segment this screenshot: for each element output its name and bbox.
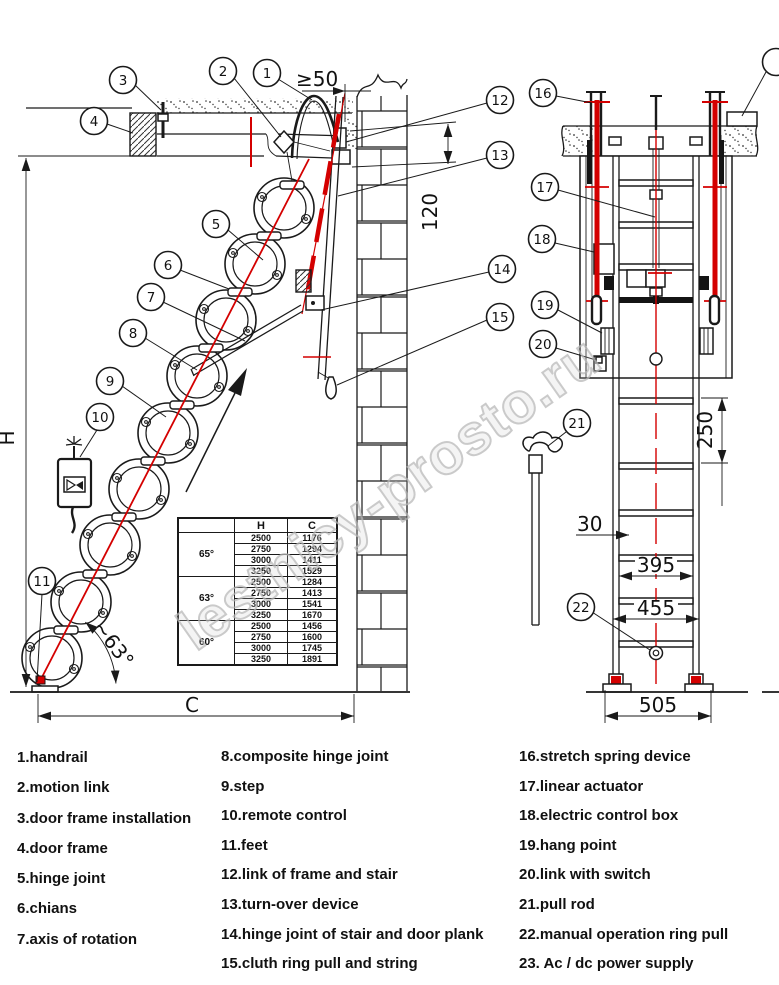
wall-section	[356, 68, 408, 691]
ceiling-slab	[26, 98, 357, 167]
legend-item: 21.pull rod	[519, 890, 728, 920]
dim-angle-label: ~63°	[88, 616, 139, 672]
pull-rod	[523, 432, 562, 625]
svg-text:2: 2	[219, 64, 228, 80]
balloon-4: 4	[81, 108, 134, 135]
svg-text:14: 14	[493, 262, 510, 278]
svg-text:9: 9	[106, 374, 115, 390]
legend-item: 2.motion link	[17, 773, 191, 803]
svg-text:7: 7	[147, 290, 156, 306]
legend-item: 4.door frame	[17, 834, 191, 864]
legend-item: 5.hinge joint	[17, 864, 191, 894]
legend-item: 3.door frame installation	[17, 804, 191, 834]
svg-text:1: 1	[263, 66, 272, 82]
balloon-14: 14	[321, 256, 516, 311]
angle-cell: 60°	[178, 621, 235, 666]
rail-bracket-left	[604, 276, 614, 290]
dim-505: 505	[605, 690, 711, 723]
svg-text:16: 16	[534, 86, 551, 102]
front-view: 250 30 395 455 505	[523, 92, 779, 723]
angle-cell: 65°	[178, 533, 235, 577]
svg-text:22: 22	[572, 600, 589, 616]
svg-text:3: 3	[119, 73, 128, 89]
legend-item: 11.feet	[221, 831, 484, 861]
manual-ring-pull	[650, 647, 663, 660]
balloon-6: 6	[155, 252, 230, 290]
legend-column-3: 16.stretch spring device 17.linear actua…	[519, 742, 728, 979]
legend-item: 19.hang point	[519, 831, 728, 861]
feet	[32, 676, 58, 692]
legend-item: 18.electric control box	[519, 801, 728, 831]
legend-item: 20.link with switch	[519, 860, 728, 890]
legend-item: 12.link of frame and stair	[221, 860, 484, 890]
dim-step-label: 30	[577, 512, 602, 536]
balloon-16: 16	[530, 80, 593, 107]
door-frame-block	[130, 113, 156, 156]
svg-text:6: 6	[164, 258, 173, 274]
legend-item: 7.axis of rotation	[17, 925, 191, 955]
svg-text:8: 8	[129, 326, 138, 342]
header-angle	[178, 518, 235, 533]
svg-text:17: 17	[536, 180, 553, 196]
legend-item: 8.composite hinge joint	[221, 742, 484, 772]
legend-item: 1.handrail	[17, 743, 191, 773]
dim-H: H	[0, 156, 140, 687]
turn-over-device	[296, 270, 311, 292]
legend-item: 14.hinge joint of stair and door plank	[221, 920, 484, 950]
svg-text:20: 20	[534, 337, 551, 353]
balloon-11: 11	[29, 568, 56, 683]
ladder-drawing-page: H C ~63° ≥50 120	[0, 0, 779, 985]
link-with-switch	[594, 356, 606, 371]
legend-item: 17.linear actuator	[519, 772, 728, 802]
dim-width-label: C	[185, 693, 199, 717]
svg-text:21: 21	[568, 416, 585, 432]
header-C: C	[288, 518, 338, 533]
balloon-3: 3	[110, 67, 162, 111]
balloon-5: 5	[203, 211, 264, 261]
legend-item: 15.cluth ring pull and string	[221, 949, 484, 979]
svg-text:18: 18	[533, 232, 550, 248]
svg-text:11: 11	[33, 574, 50, 590]
svg-text:15: 15	[491, 310, 508, 326]
dim-angle: ~63°	[85, 616, 139, 684]
legend-item: 13.turn-over device	[221, 890, 484, 920]
dim-outer-label: 455	[637, 596, 675, 620]
legend-item: 23. Ac / dc power supply	[519, 949, 728, 979]
legend-item: 16.stretch spring device	[519, 742, 728, 772]
header-H: H	[235, 518, 288, 533]
svg-text:10: 10	[91, 410, 108, 426]
svg-text:13: 13	[491, 148, 508, 164]
balloon-10: 10	[80, 404, 114, 458]
spec-table: H C 65° 25001176 27501294 30001411 32501…	[177, 517, 338, 666]
balloon-8: 8	[120, 320, 198, 371]
svg-text:4: 4	[90, 114, 99, 130]
dim-gap-label: ≥50	[296, 67, 338, 91]
dim-250: 250	[693, 398, 728, 506]
balloon-21: 21	[548, 410, 591, 447]
table-row: 65° 25001176	[178, 533, 337, 544]
table-row: 63° 25001284	[178, 577, 337, 588]
legend-item: 9.step	[221, 772, 484, 802]
ac-dc-power-box	[727, 112, 757, 126]
table-row: 60° 25001456	[178, 621, 337, 632]
angle-cell: 63°	[178, 577, 235, 621]
dim-height-label: H	[0, 430, 19, 445]
legend-column-1: 1.handrail 2.motion link 3.door frame in…	[17, 743, 191, 955]
svg-text:19: 19	[536, 298, 553, 314]
legend-item: 22.manual operation ring pull	[519, 920, 728, 950]
dim-C: C	[38, 693, 354, 723]
remote-control	[58, 436, 91, 533]
rail-bracket-right	[699, 276, 709, 290]
front-base	[586, 674, 779, 692]
svg-text:5: 5	[212, 217, 221, 233]
cluth-ring-pull	[326, 377, 336, 399]
legend-column-2: 8.composite hinge joint 9.step 10.remote…	[221, 742, 484, 979]
table-header-row: H C	[178, 518, 337, 533]
legend-item: 10.remote control	[221, 801, 484, 831]
svg-text:12: 12	[491, 93, 508, 109]
dim-base-label: 505	[639, 693, 677, 717]
dim-rung-label: 250	[693, 411, 717, 449]
legend-item: 6.chians	[17, 894, 191, 924]
balloon-23-partial	[742, 49, 779, 117]
dim-inner-label: 395	[637, 553, 675, 577]
dim-depth-label: 120	[418, 193, 442, 231]
